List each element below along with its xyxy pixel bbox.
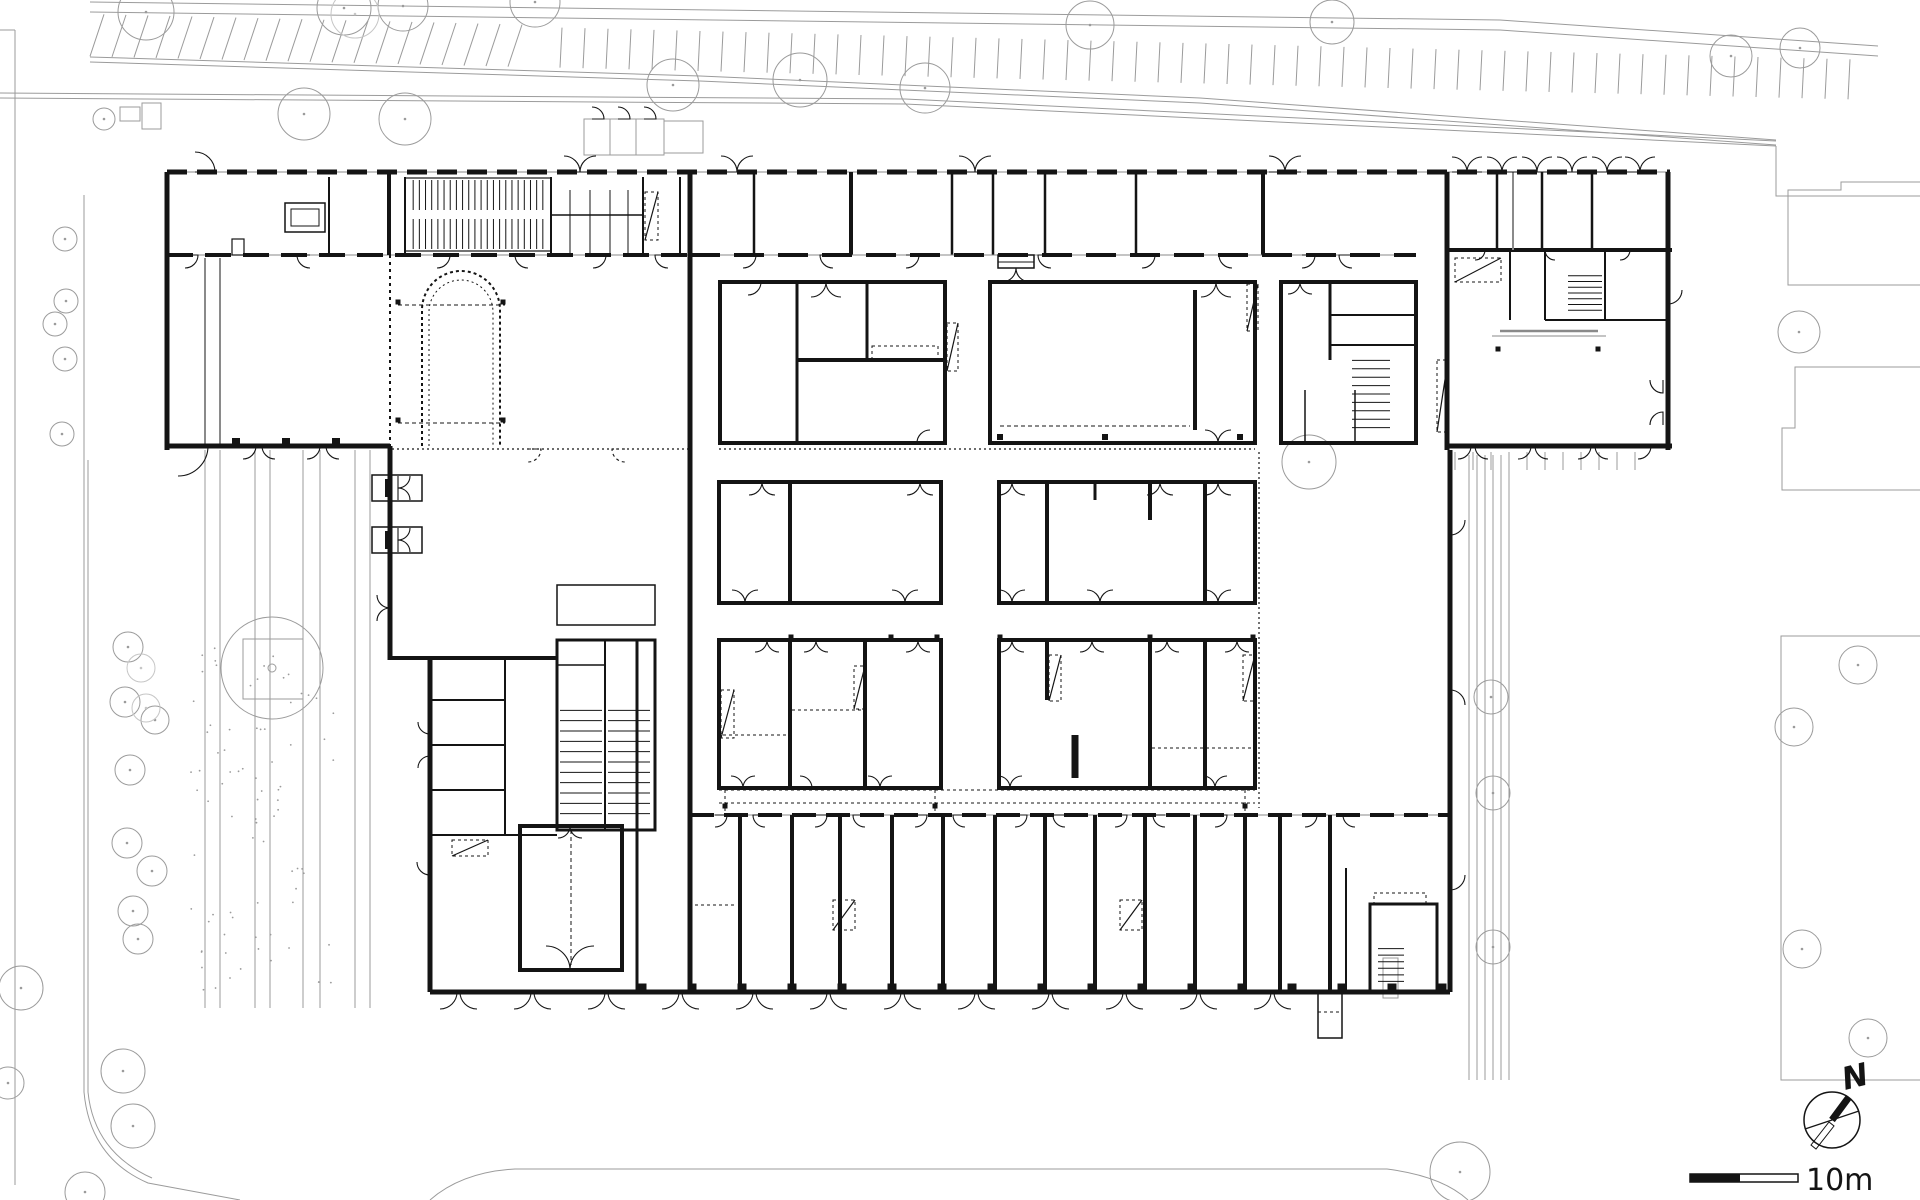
floor-plan-sheet: N 10m <box>0 0 1920 1200</box>
scale-bar-label: 10m <box>1806 1163 1873 1198</box>
site-context-layer <box>0 0 1920 1200</box>
north-label: N <box>1838 1057 1872 1098</box>
building-plan-layer <box>167 107 1682 1038</box>
site-plan-drawing: N 10m <box>0 0 1920 1200</box>
